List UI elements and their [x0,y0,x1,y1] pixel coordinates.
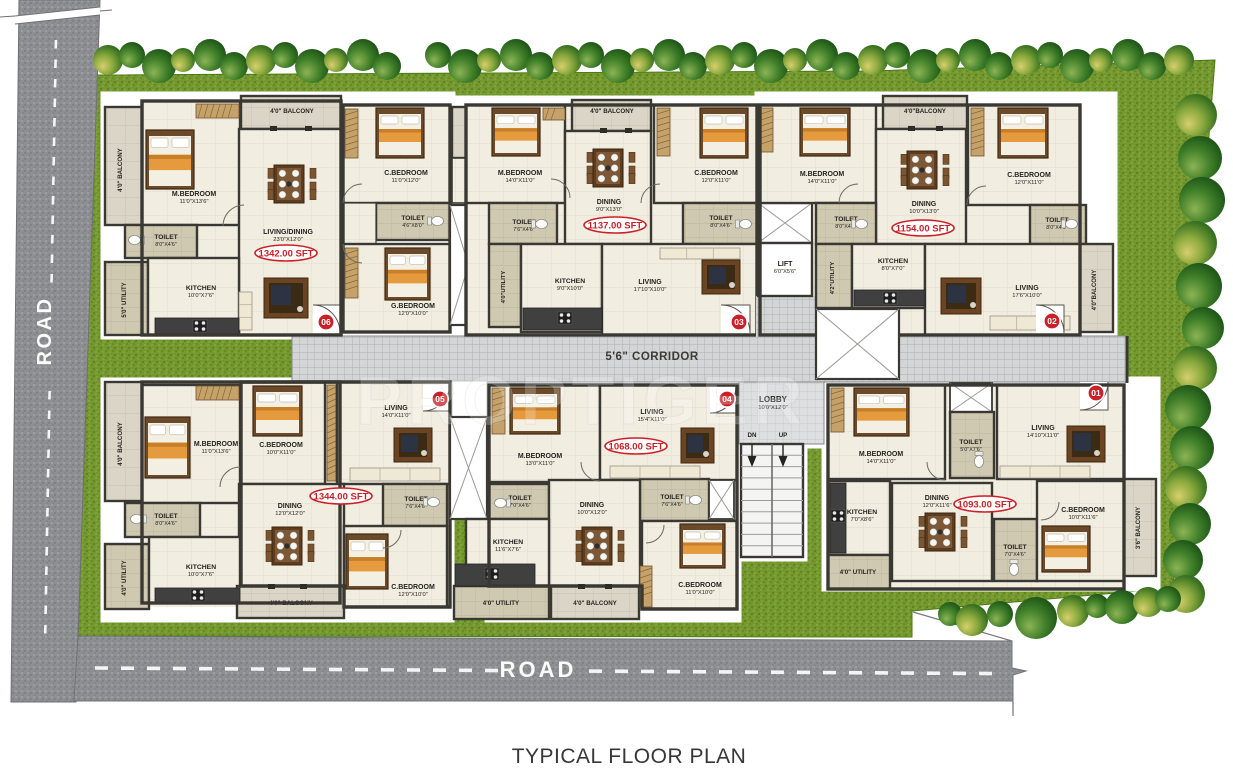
svg-text:ROAD: ROAD [500,657,577,682]
svg-text:PROPTIGER: PROPTIGER [356,362,807,439]
svg-text:02: 02 [1047,316,1057,326]
svg-text:4'0" BALCONY: 4'0" BALCONY [117,421,124,465]
svg-text:10'0"X7'6": 10'0"X7'6" [188,572,214,578]
svg-text:C.BEDROOM: C.BEDROOM [678,582,722,589]
svg-text:TOILET: TOILET [154,513,177,520]
svg-text:M.BEDROOM: M.BEDROOM [518,453,563,460]
svg-text:14'0"X11'0": 14'0"X11'0" [866,459,895,465]
svg-text:C.BEDROOM: C.BEDROOM [384,170,428,177]
svg-text:C.BEDROOM: C.BEDROOM [694,170,738,177]
svg-text:4'0" UTILITY: 4'0" UTILITY [483,600,520,607]
svg-text:TYPICAL FLOOR PLAN: TYPICAL FLOOR PLAN [512,745,747,768]
svg-text:LIVING: LIVING [638,279,662,286]
svg-text:KITCHEN: KITCHEN [493,539,523,546]
svg-text:KITCHEN: KITCHEN [878,258,908,265]
svg-text:03: 03 [734,317,744,327]
svg-text:TOILET: TOILET [959,439,982,446]
svg-text:12'0"X10'0": 12'0"X10'0" [398,592,428,598]
svg-text:11'0"X12'0": 11'0"X12'0" [391,178,420,184]
svg-text:10'0"X7'6": 10'0"X7'6" [188,293,214,299]
svg-text:13'0"X11'0": 13'0"X11'0" [525,461,554,467]
svg-text:KITCHEN: KITCHEN [186,285,216,292]
svg-text:M.BEDROOM: M.BEDROOM [498,170,543,177]
svg-text:1154.00 SFT: 1154.00 SFT [896,223,951,234]
svg-text:C.BEDROOM: C.BEDROOM [259,442,303,449]
svg-text:G.BEDROOM: G.BEDROOM [391,303,435,310]
svg-text:M.BEDROOM: M.BEDROOM [194,441,239,448]
svg-text:LIVING/DINING: LIVING/DINING [263,229,313,236]
svg-text:TOILET: TOILET [709,215,732,222]
svg-text:C.BEDROOM: C.BEDROOM [391,584,435,591]
svg-text:7'0"X4'6": 7'0"X4'6" [1004,552,1026,558]
svg-text:1068.00 SFT: 1068.00 SFT [609,441,664,452]
svg-text:9'0"X10'0": 9'0"X10'0" [557,286,583,292]
svg-text:KITCHEN: KITCHEN [555,278,585,285]
svg-text:1137.00 SFT: 1137.00 SFT [588,220,643,231]
svg-text:4'0" UTILITY: 4'0" UTILITY [122,560,128,595]
svg-text:7'6"X4'6": 7'6"X4'6" [661,502,683,508]
svg-text:10'0"X12'0": 10'0"X12'0" [577,510,607,516]
svg-text:12'0"X10'0": 12'0"X10'0" [398,311,428,317]
svg-text:7'0"X4'6": 7'0"X4'6" [509,503,531,509]
svg-text:M.BEDROOM: M.BEDROOM [800,171,845,178]
svg-text:17'10"X10'0": 17'10"X10'0" [634,287,667,293]
svg-text:4'6"X8'0": 4'6"X8'0" [402,223,424,229]
svg-text:DINING: DINING [597,199,622,206]
svg-text:KITCHEN: KITCHEN [186,564,216,571]
svg-text:KITCHEN: KITCHEN [847,509,877,516]
svg-text:10'0"X11'6": 10'0"X11'6" [1068,515,1097,521]
svg-text:4'0" UTILITY: 4'0" UTILITY [840,569,877,576]
svg-text:LIFT: LIFT [778,261,793,268]
svg-text:11'6"X7'6": 11'6"X7'6" [495,547,521,553]
svg-text:3'6" BALCONY: 3'6" BALCONY [1136,507,1142,549]
svg-text:8'0"X4'6": 8'0"X4'6" [155,521,177,527]
svg-text:14'0"X11'0": 14'0"X11'0" [807,179,836,185]
svg-text:TOILET: TOILET [154,234,177,241]
svg-text:C.BEDROOM: C.BEDROOM [1007,172,1051,179]
svg-text:4'0"BALCONY: 4'0"BALCONY [1092,270,1098,311]
svg-text:01: 01 [1091,388,1101,398]
svg-text:14'0"X11'0": 14'0"X11'0" [505,178,534,184]
svg-text:TOILET: TOILET [660,494,683,501]
svg-text:ROAD: ROAD [34,297,56,366]
svg-text:8'0"X4'6": 8'0"X4'6" [710,223,732,229]
svg-text:4'0" BALCONY: 4'0" BALCONY [590,108,634,115]
svg-text:17'6"X10'0": 17'6"X10'0" [1012,293,1042,299]
svg-text:10'0"X11'0": 10'0"X11'0" [266,450,295,456]
svg-text:1093.00 SFT: 1093.00 SFT [958,499,1013,510]
svg-text:M.BEDROOM: M.BEDROOM [859,451,904,458]
svg-text:4'0"BALCONY: 4'0"BALCONY [904,108,947,115]
svg-text:TOILET: TOILET [508,495,531,502]
svg-text:1344.00 SFT: 1344.00 SFT [314,491,369,502]
svg-text:4'0" BALCONY: 4'0" BALCONY [270,108,314,115]
svg-text:DINING: DINING [912,201,937,208]
svg-text:12'0"X11'6": 12'0"X11'6" [922,503,951,509]
svg-text:DINING: DINING [925,495,950,502]
svg-text:1342.00 SFT: 1342.00 SFT [259,248,314,259]
svg-text:9'0"X13'0": 9'0"X13'0" [596,207,622,213]
svg-text:4'0" BALCONY: 4'0" BALCONY [573,600,617,607]
svg-text:7'0"X8'6": 7'0"X8'6" [850,517,873,523]
svg-text:11'0"X13'6": 11'0"X13'6" [179,199,208,205]
svg-text:6'0"X5'6": 6'0"X5'6" [774,269,796,275]
svg-text:11'0"X10'0": 11'0"X10'0" [685,590,714,596]
svg-text:M.BEDROOM: M.BEDROOM [172,191,217,198]
svg-text:11'0"X13'6": 11'0"X13'6" [201,449,230,455]
svg-text:06: 06 [321,317,331,327]
svg-text:5'0" UTILITY: 5'0" UTILITY [122,282,128,317]
svg-text:TOILET: TOILET [401,215,424,222]
svg-text:4'0" BALCONY: 4'0" BALCONY [117,147,124,191]
svg-text:4'2"UTILITY: 4'2"UTILITY [830,262,836,295]
svg-text:LIVING: LIVING [1031,425,1055,432]
svg-text:14'10"X11'0": 14'10"X11'0" [1027,433,1059,439]
svg-text:4'0"UTILITY: 4'0"UTILITY [501,271,507,304]
svg-text:LIVING: LIVING [1015,285,1039,292]
svg-text:DINING: DINING [278,503,303,510]
svg-text:TOILET: TOILET [1003,544,1026,551]
svg-text:12'0"X11'0": 12'0"X11'0" [1014,180,1043,186]
svg-text:DINING: DINING [580,502,605,509]
svg-text:23'0"X12'0": 23'0"X12'0" [273,237,303,243]
svg-text:8'0"X7'0": 8'0"X7'0" [881,266,904,272]
svg-text:8'0"X4'6": 8'0"X4'6" [155,242,177,248]
svg-text:C.BEDROOM: C.BEDROOM [1061,507,1105,514]
svg-text:12'0"X11'0": 12'0"X11'0" [701,178,730,184]
svg-text:10'0"X13'0": 10'0"X13'0" [909,209,939,215]
svg-text:12'0"X12'0": 12'0"X12'0" [275,511,305,517]
